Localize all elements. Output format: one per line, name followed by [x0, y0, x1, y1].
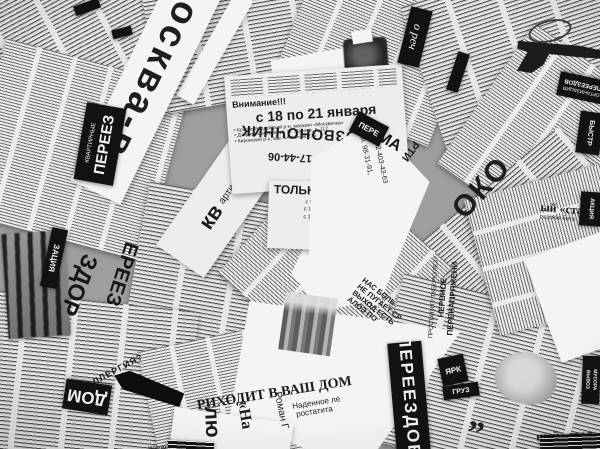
label-vyvoz: ВЫВОЗ — [584, 370, 591, 389]
ad-box-yark: ЯРК — [437, 354, 468, 387]
ad-column-prostatit: ПРОСТАТИТ? ТУБЕРКУЛЕЗ? НЕРВНОЕ ПЕРЕНАПРЯ… — [420, 245, 467, 352]
ad-box-vyvoz-musora: ВЫВОЗ МУСОРА — [581, 356, 600, 405]
phone-number: 17-44-06 — [268, 150, 313, 164]
label-pereezdov: ПЕРЕЕЗДОВ — [394, 334, 425, 449]
label-aktsiya: АКЦИЯ — [587, 198, 594, 219]
ad-box-aktsiya: АКЦИЯ — [579, 191, 600, 226]
label-bystr: БЫСТР — [585, 120, 596, 146]
label-yark: ЯРК — [444, 364, 461, 376]
ad-line: ПЕРЕНАПРЯЖЕНИ — [445, 261, 459, 335]
label-musora: МУСОРА — [591, 369, 598, 390]
headline-lyu: лю — [199, 406, 225, 438]
label-dom: ДОМ — [66, 384, 108, 410]
newspaper-collage: осква-в кв артир КВАРТИРНЫЕ ПЕРЕЕЗ Внима… — [0, 0, 600, 449]
label-zatsiya: ЗАЦИЯ — [47, 243, 62, 272]
label-gruz: ГРУЗ — [452, 386, 470, 395]
black-bar-lines — [540, 433, 600, 449]
black-bar-lines — [168, 440, 214, 449]
label-rech: о реч — [405, 23, 426, 52]
